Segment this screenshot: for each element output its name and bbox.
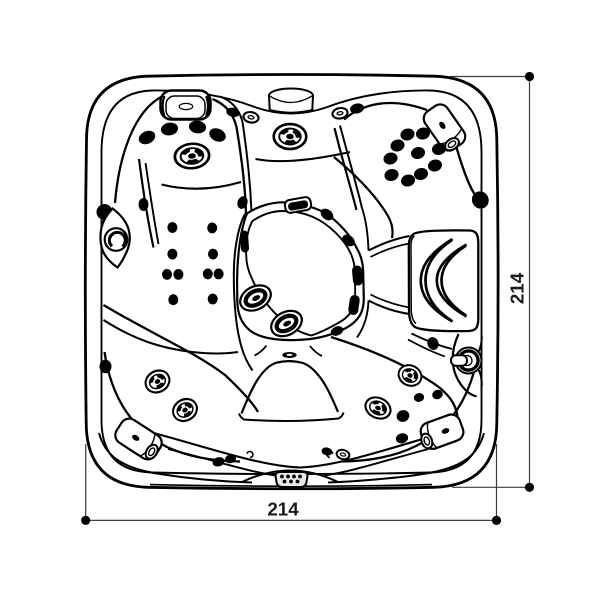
svg-text:214: 214 <box>507 272 528 304</box>
svg-text:214: 214 <box>267 499 299 520</box>
